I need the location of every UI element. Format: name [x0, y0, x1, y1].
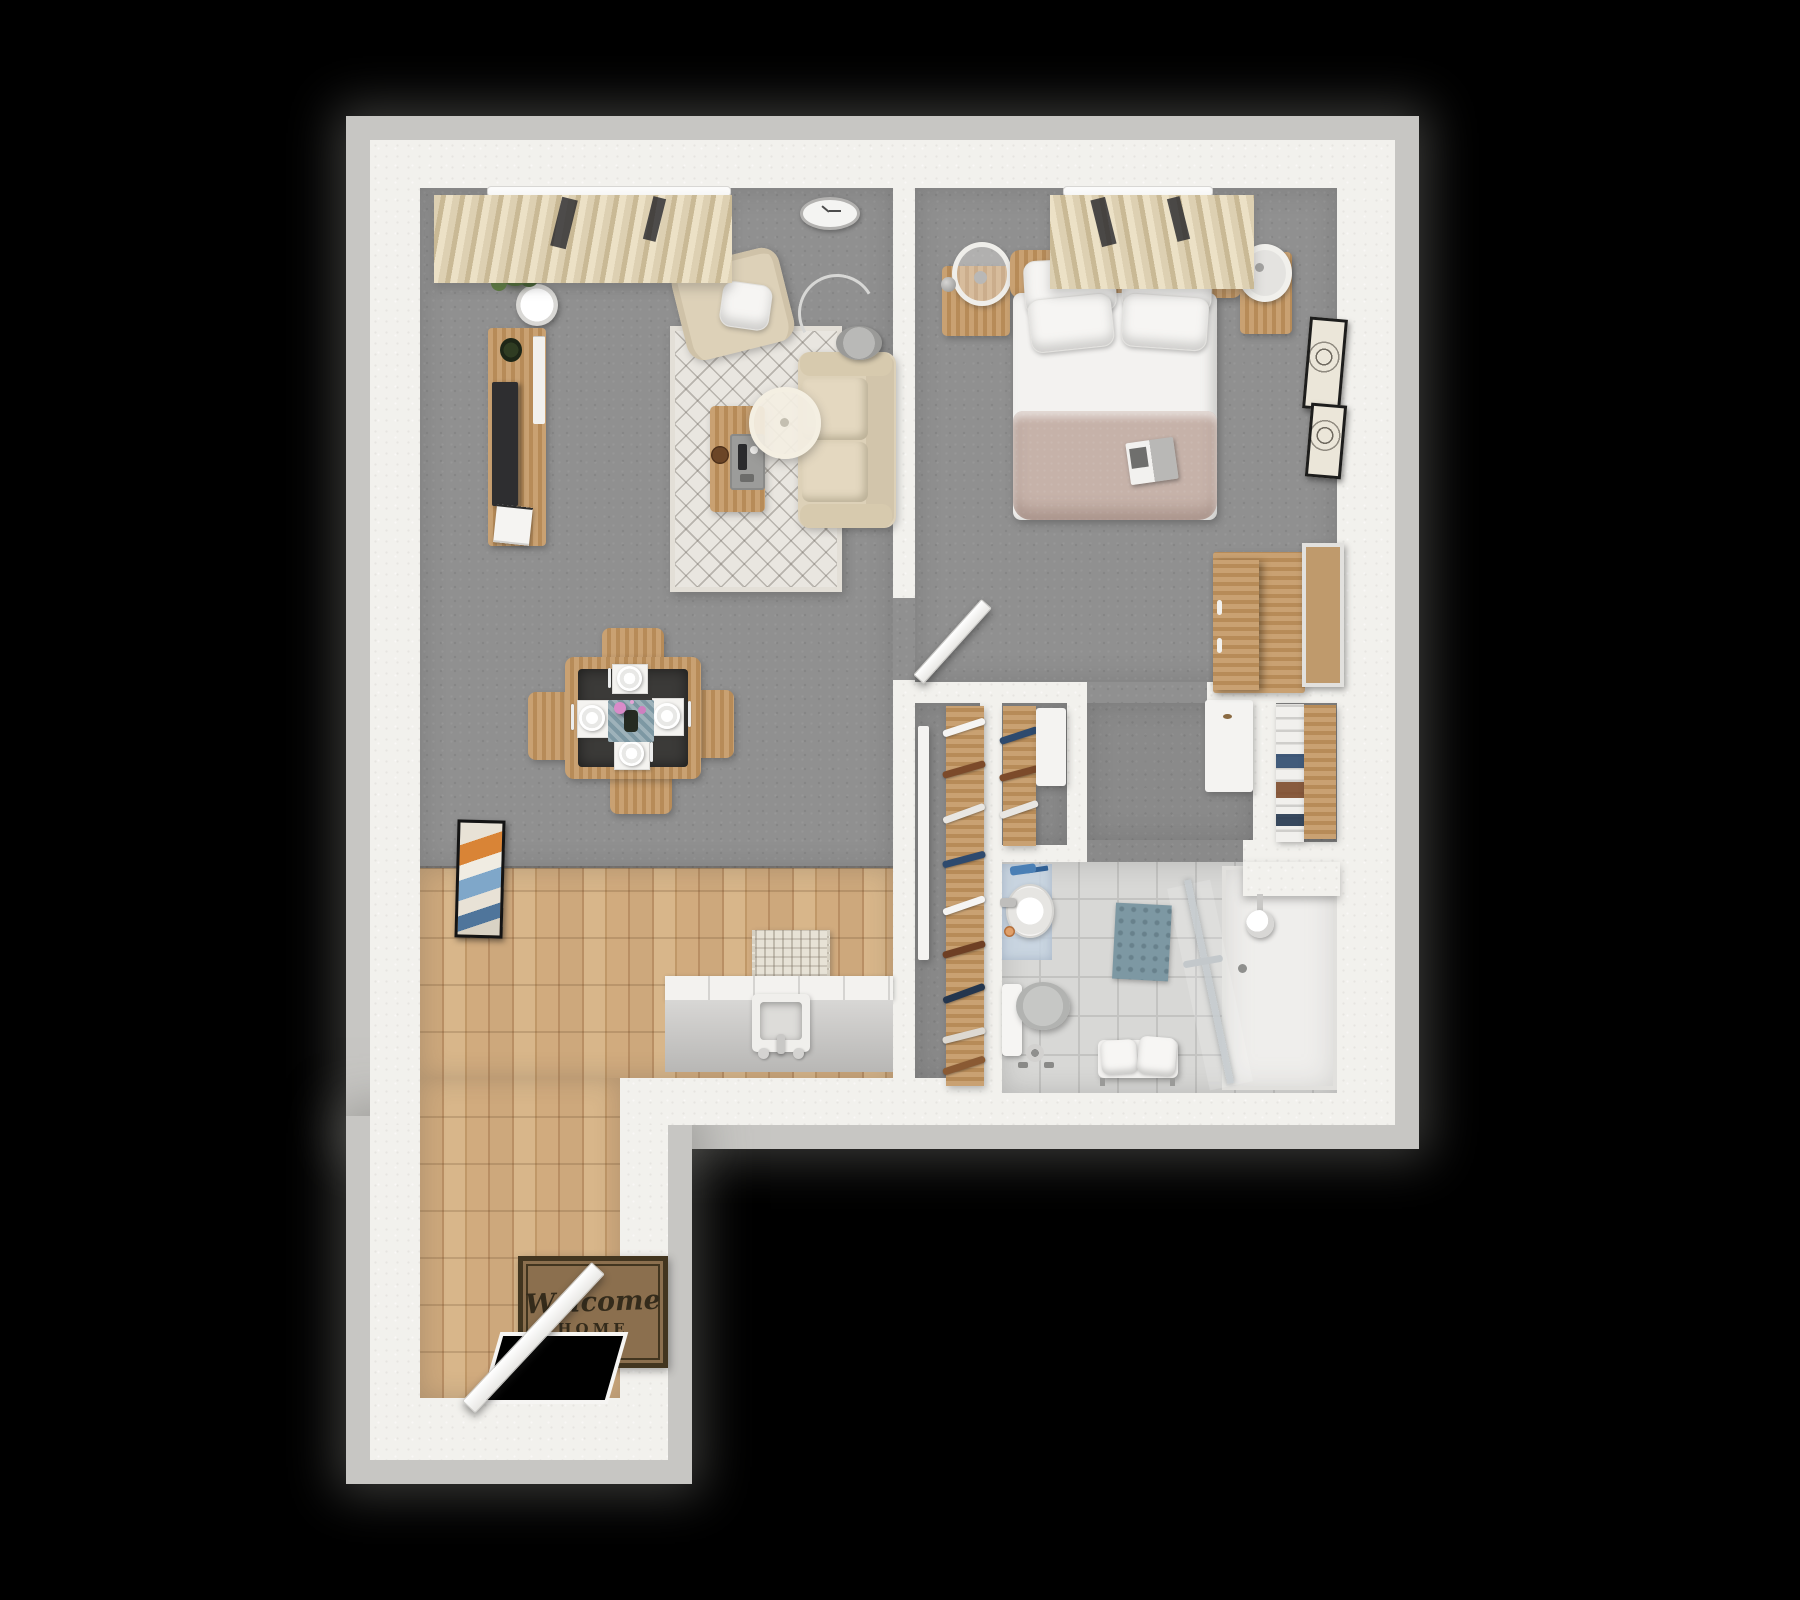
shower-top-wall: [1243, 862, 1340, 896]
clothes-item: [942, 803, 986, 825]
dresser-handle: [1223, 714, 1232, 719]
window-gap: [1090, 197, 1116, 247]
doorway-bathroom-threshold: [1087, 840, 1243, 864]
faucet-knob: [758, 1048, 769, 1059]
tray-item: [750, 446, 758, 454]
small-plant-pot: [500, 338, 522, 362]
clothes-item: [942, 1055, 986, 1075]
sideboard-drawers: [533, 336, 545, 424]
lamp-hub: [780, 418, 789, 427]
sink-faucet: [1000, 898, 1016, 907]
kitchen-sink: [752, 994, 810, 1052]
clothes-item: [942, 760, 986, 779]
floor-drain: [1238, 964, 1247, 973]
plant-stand: [516, 284, 558, 326]
dinner-plate: [654, 703, 680, 729]
clock-hand-minute: [821, 205, 829, 212]
flowers: [614, 702, 626, 714]
armchair-throw-pillow: [718, 280, 774, 333]
clothes-item: [942, 895, 986, 916]
clothes-item: [942, 850, 986, 868]
dinner-plate: [579, 705, 605, 731]
drum-floor-lamp: [749, 387, 821, 459]
clothes-item: [999, 765, 1039, 782]
toilet-paper-stand: [1018, 1040, 1054, 1070]
curtains-bedroom: [1050, 195, 1254, 289]
tray-item: [740, 474, 754, 482]
slatted-shelf-unit: [1276, 704, 1304, 842]
ring-table-lamp: [952, 242, 1012, 306]
folded-clothes: [1276, 814, 1304, 826]
floor-plan-scene: Welcome HOME: [0, 0, 1800, 1600]
decor-ball: [941, 277, 956, 292]
welcome-mat-subtext: HOME: [557, 1320, 628, 1338]
bed-pillow: [1026, 292, 1115, 354]
stand-leg: [1018, 1062, 1028, 1068]
window-gap: [643, 196, 666, 242]
duvet: [1013, 411, 1217, 520]
folded-clothes: [1276, 782, 1304, 798]
curtains-living: [434, 195, 732, 283]
shower-head: [1246, 910, 1274, 938]
magazine-photo: [1129, 447, 1149, 469]
paper-roll: [1026, 1044, 1044, 1062]
closet-sliding-door: [918, 726, 929, 960]
candle: [1004, 926, 1015, 937]
clothes-item: [942, 1027, 986, 1044]
wardrobe: [1213, 552, 1305, 693]
double-bed: [1008, 248, 1244, 524]
window-gap: [1167, 196, 1190, 242]
dinner-plate: [617, 666, 642, 691]
fan-hub: [1255, 263, 1264, 272]
stand-leg: [1044, 1062, 1054, 1068]
closet-cabinet: [1036, 708, 1066, 786]
faucet-knob: [793, 1048, 804, 1059]
opening-dressing-threshold: [1087, 682, 1207, 703]
dresser: [1205, 700, 1253, 792]
entry-wall-art: [454, 819, 505, 938]
lamp-ball: [974, 271, 987, 284]
closet-side-panel: [1304, 705, 1336, 839]
flower-vase: [624, 710, 638, 732]
magazines-stack: [493, 504, 533, 546]
cutlery: [688, 701, 691, 727]
wardrobe-handle: [1217, 638, 1222, 653]
magazine-on-bed: [1125, 437, 1178, 485]
window-gap: [550, 197, 578, 249]
coaster: [711, 446, 729, 464]
sofa-backrest: [866, 356, 894, 524]
bench-leg: [1100, 1078, 1105, 1086]
wardrobe-door: [1213, 560, 1259, 690]
teal-bath-mat: [1112, 903, 1172, 982]
wardrobe-handle: [1217, 600, 1222, 615]
clothes-item: [999, 800, 1039, 820]
clothes-item: [942, 717, 986, 737]
tv-sideboard: [488, 328, 546, 546]
towel: [1100, 1039, 1138, 1075]
closet-rail-left: [946, 706, 984, 1086]
sink-faucet: [777, 1034, 785, 1054]
wall-art-frame: [1302, 317, 1348, 412]
folded-clothes: [1276, 754, 1304, 768]
toilet-bowl: [1016, 982, 1070, 1030]
cutlery: [571, 704, 574, 730]
tv-remote: [738, 444, 747, 470]
clothes-item: [942, 983, 986, 1005]
wall-clock: [800, 197, 860, 230]
clock-hand-hour: [829, 210, 841, 212]
towel-bench: [1098, 1034, 1178, 1084]
sofa-armrest-bottom: [800, 504, 892, 528]
kitchen-runner-mat: [752, 930, 830, 976]
bed-pillow: [1120, 292, 1210, 352]
leaning-mirror: [1302, 543, 1344, 687]
clothes-item: [942, 940, 986, 959]
sofa-seat-cushion: [802, 442, 868, 502]
television: [492, 382, 518, 506]
closet-rail-right: [1003, 706, 1036, 846]
cutlery: [608, 668, 611, 688]
cutlery: [650, 742, 653, 762]
towel: [1136, 1035, 1177, 1076]
doorway-bedroom-threshold: [893, 598, 915, 680]
wall-art-frame: [1305, 403, 1347, 480]
clothes-item: [999, 726, 1039, 745]
dinner-plate: [619, 741, 644, 766]
bench-leg: [1170, 1078, 1175, 1086]
table-runner: [608, 700, 654, 742]
